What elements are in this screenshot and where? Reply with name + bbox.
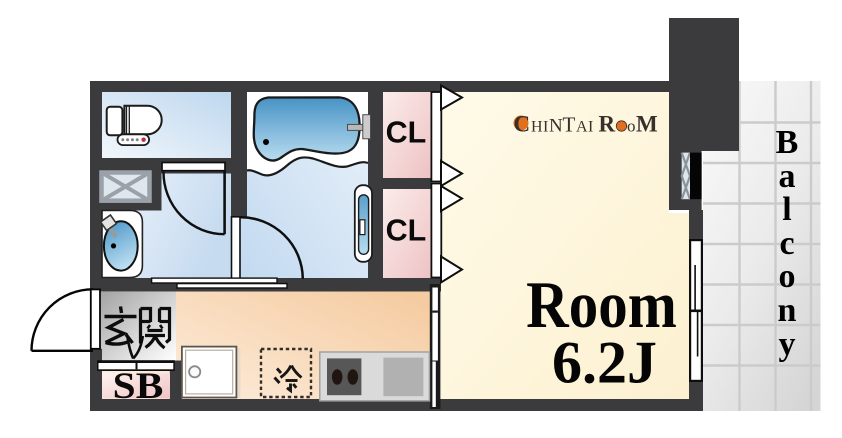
svg-text:CL: CL: [386, 214, 427, 248]
svg-text:n: n: [778, 292, 797, 329]
svg-text:6.2J: 6.2J: [552, 330, 657, 396]
svg-text:a: a: [779, 158, 796, 195]
svg-text:c: c: [779, 225, 794, 262]
svg-text:l: l: [782, 191, 791, 228]
svg-text:M: M: [636, 112, 658, 137]
svg-text:I: I: [543, 119, 548, 136]
svg-text:T: T: [563, 113, 576, 137]
svg-text:N: N: [549, 116, 563, 137]
svg-text:o: o: [627, 117, 636, 136]
svg-text:SB: SB: [113, 366, 164, 407]
svg-text:y: y: [779, 326, 796, 363]
svg-text:R: R: [599, 112, 616, 137]
svg-text:o: o: [779, 258, 796, 295]
svg-text:B: B: [776, 124, 799, 161]
svg-text:C: C: [514, 112, 531, 137]
svg-text:I: I: [588, 119, 593, 136]
svg-text:CL: CL: [386, 116, 427, 150]
svg-text:A: A: [576, 119, 588, 136]
svg-text:H: H: [531, 119, 543, 136]
